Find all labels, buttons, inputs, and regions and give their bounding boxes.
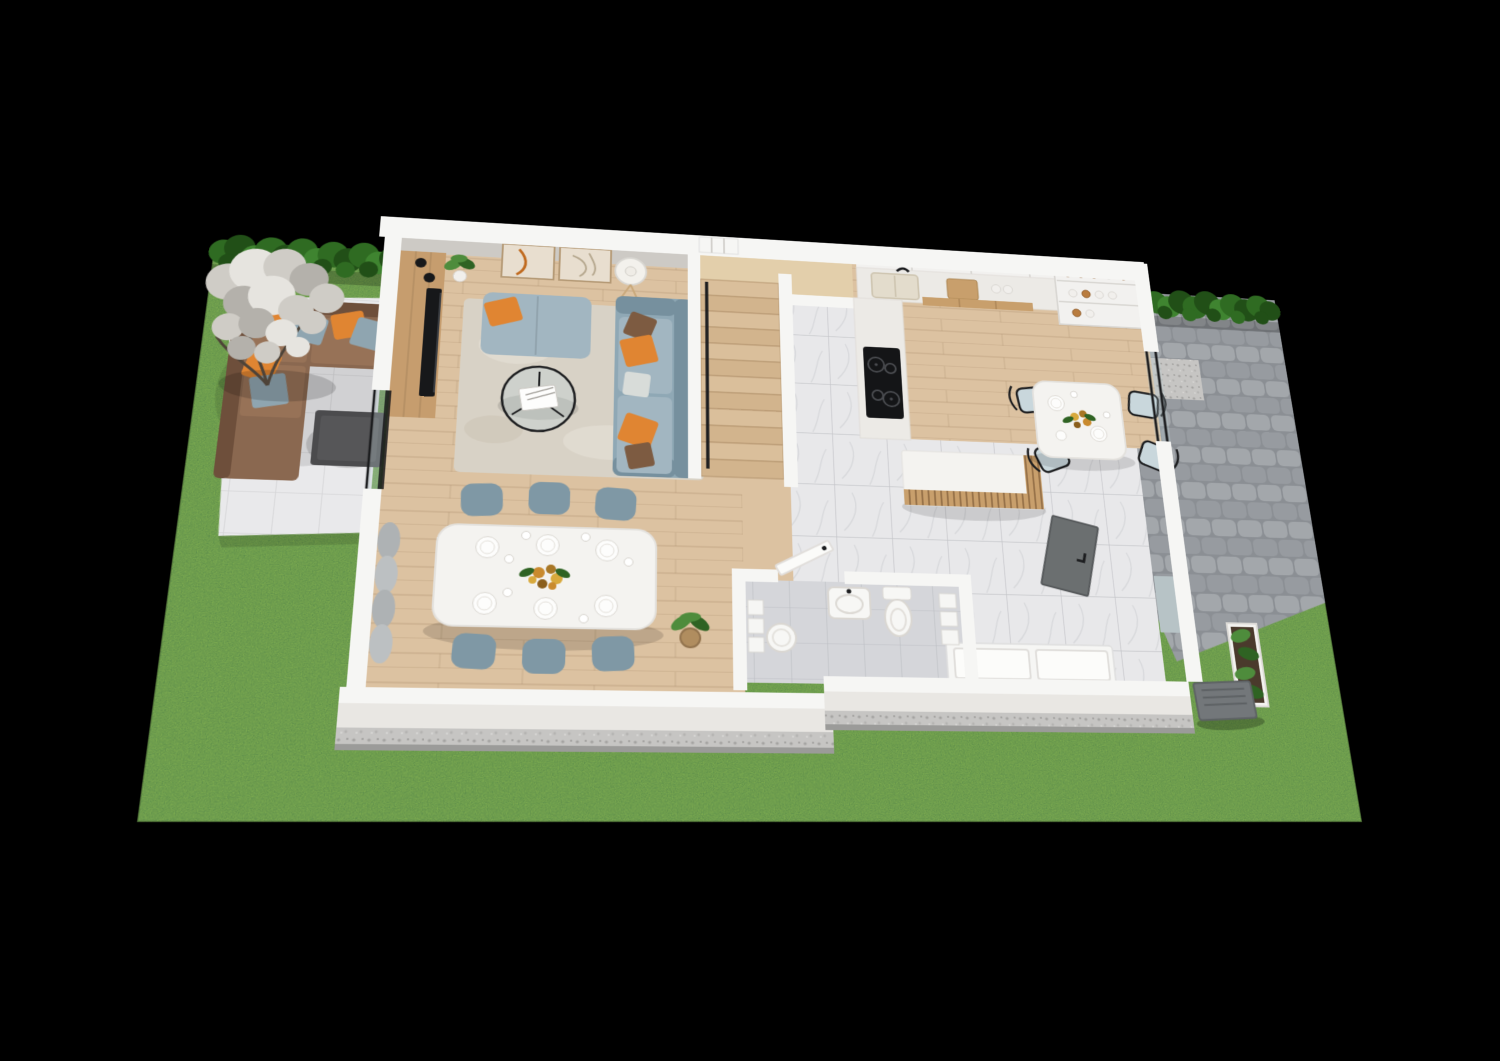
dining-chair <box>594 486 637 521</box>
dining-table <box>422 523 664 652</box>
ottoman <box>480 292 592 359</box>
bathroom-shelves-west <box>748 600 765 653</box>
cutting-board <box>947 279 979 300</box>
ladder-shelf <box>699 237 738 255</box>
wall-art-2 <box>559 247 611 283</box>
book <box>519 385 559 411</box>
dining-chair <box>450 632 497 670</box>
scene-root <box>0 0 1500 1061</box>
cooktop <box>863 346 904 419</box>
dining-chair <box>461 483 503 516</box>
stair-west-wall <box>688 251 702 478</box>
stair-handrail <box>707 282 708 469</box>
entrance-door <box>1041 515 1098 596</box>
wall-art-1 <box>501 244 554 280</box>
bathroom-shelves-east <box>939 593 959 644</box>
dining-chair <box>522 639 566 675</box>
breakfast-table <box>1024 380 1137 472</box>
floor-plan-projection <box>137 177 1362 822</box>
sofa-pillow-pattern <box>622 371 651 398</box>
sofa-pillow-brown <box>624 442 655 470</box>
floor-plan-canvas <box>137 177 1362 822</box>
dining-chair <box>528 482 570 515</box>
laundry-basket <box>767 623 797 652</box>
kitchen-island <box>899 450 1047 523</box>
stair-treads <box>700 279 784 479</box>
bathroom-sink <box>828 587 871 619</box>
dining-chair <box>591 636 635 672</box>
bathroom-west-wall <box>732 568 748 690</box>
living-sofa <box>612 296 694 479</box>
